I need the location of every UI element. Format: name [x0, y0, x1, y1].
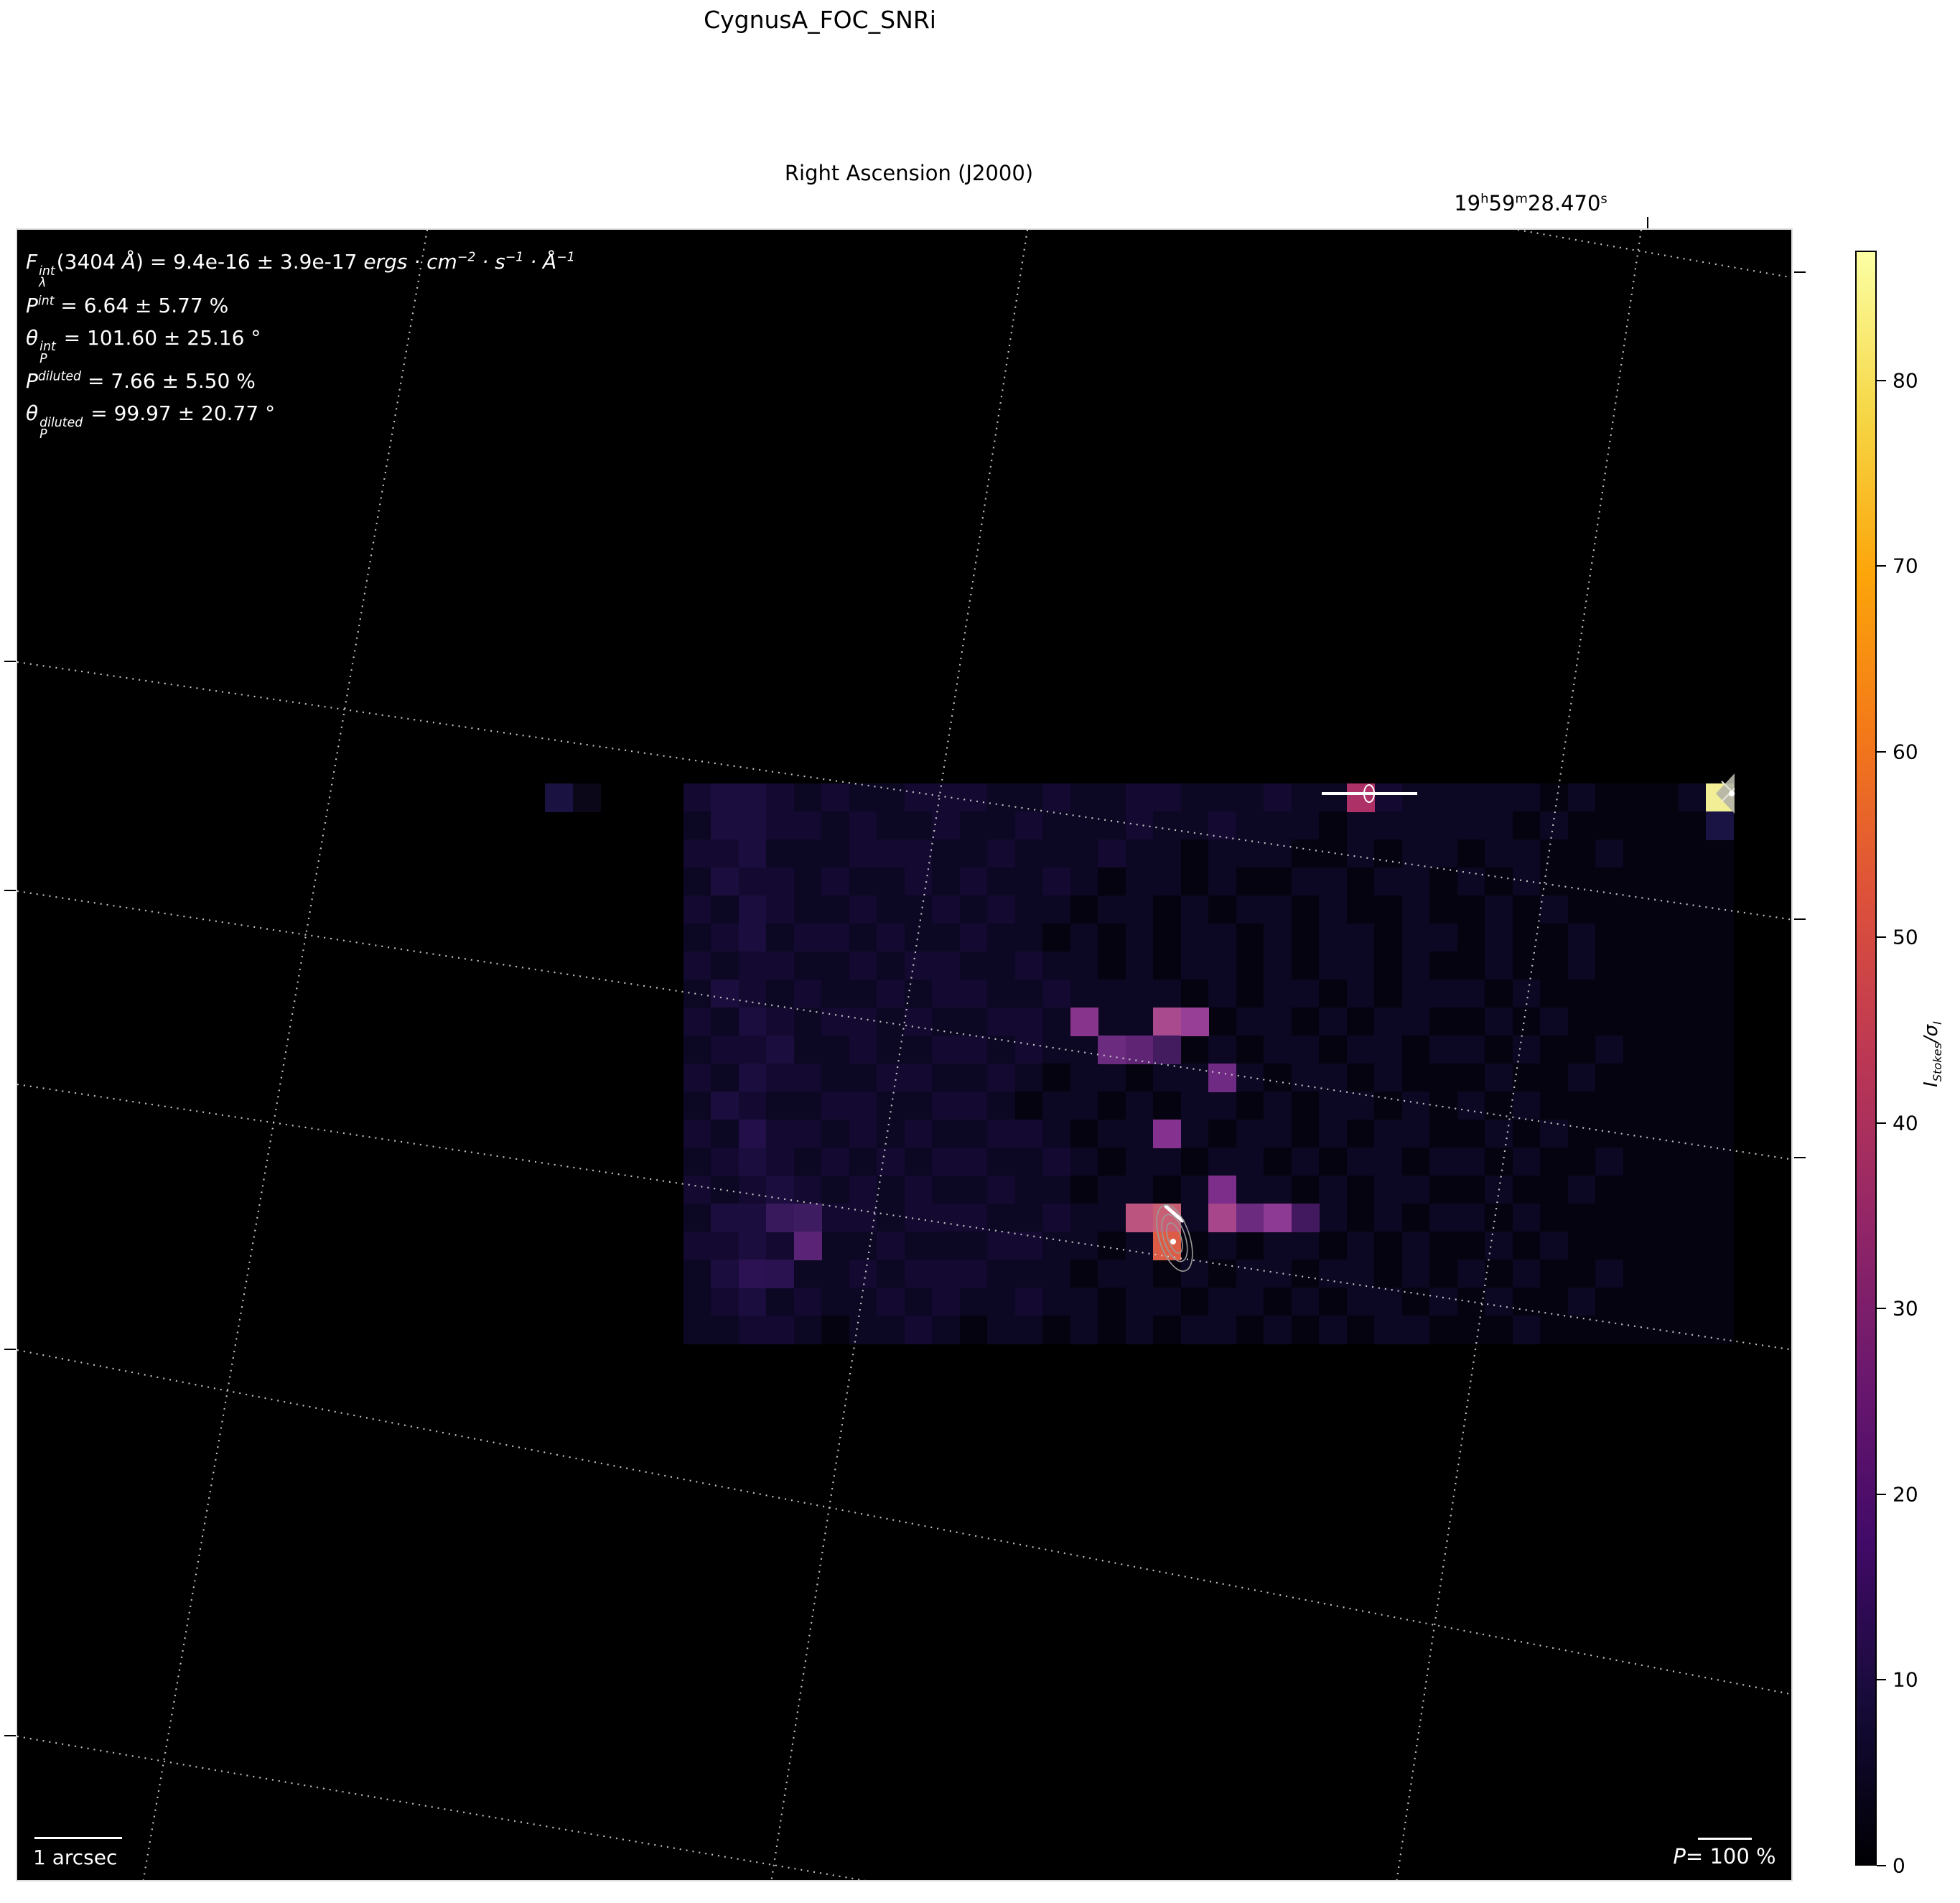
colorbar-tick-label: 20	[1893, 1482, 1918, 1506]
colorbar-axis-label: IStokes/σI	[1921, 1021, 1942, 1087]
ra-axis-label: Right Ascension (J2000)	[785, 161, 1033, 185]
colorbar-tick	[1877, 1308, 1886, 1309]
axis-tick	[1794, 1157, 1806, 1158]
colorbar-tick-label: 30	[1893, 1297, 1918, 1321]
colorbar-tick-label: 40	[1893, 1111, 1918, 1135]
colorbar-tick-label: 10	[1893, 1668, 1918, 1692]
contour-ring	[1157, 1211, 1193, 1265]
axis-tick	[4, 1349, 16, 1350]
axis-tick	[1794, 271, 1806, 273]
polarization-scale-label: P= 100 %	[1673, 1844, 1775, 1869]
contour-ring	[1164, 1221, 1186, 1255]
plot-area	[16, 228, 1793, 1881]
colorbar-tick	[1877, 1494, 1886, 1495]
colorbar-tick-label: 80	[1893, 368, 1918, 392]
contour-center-dot	[1170, 1239, 1176, 1244]
colorbar-tick-label: 60	[1893, 740, 1918, 763]
colorbar-tick-label: 50	[1893, 926, 1918, 949]
figure: CygnusA_FOC_SNRi Right Ascension (J2000)…	[0, 0, 1960, 1903]
colorbar-tick	[1877, 1122, 1886, 1124]
colorbar-tick-label: 70	[1893, 554, 1918, 578]
annotation-line: Pint = 6.64 ± 5.77 %	[26, 289, 575, 322]
colorbar-tick	[1877, 1679, 1886, 1680]
colorbar-tick	[1877, 565, 1886, 567]
scalebar-line	[34, 1837, 122, 1839]
triangle-dot	[1729, 791, 1735, 796]
polarization-scale-line	[1698, 1838, 1752, 1840]
scalebar-label: 1 arcsec	[33, 1846, 117, 1869]
colorbar-tick	[1877, 380, 1886, 381]
colorbar-tick	[1877, 1865, 1886, 1866]
colorbar-tick	[1877, 751, 1886, 753]
figure-title: CygnusA_FOC_SNRi	[704, 6, 936, 34]
integrated-measurements-text: Fintλ(3404 Å) = 9.4e-16 ± 3.9e-17 ergs ·…	[26, 246, 575, 441]
ra-tick-label: 19h59m28.470s	[1454, 191, 1607, 215]
colorbar-tick	[1877, 936, 1886, 938]
polarization-markers	[17, 230, 1791, 1880]
axis-tick	[1794, 918, 1806, 920]
colorbar-tick-label: 0	[1893, 1854, 1905, 1878]
axis-tick	[1647, 217, 1648, 228]
annotation-line: θintP = 101.60 ± 25.16 °	[26, 322, 575, 366]
annotation-line: Pdiluted = 7.66 ± 5.50 %	[26, 365, 575, 397]
annotation-line: θdilutedP = 99.97 ± 20.77 °	[26, 397, 575, 441]
axis-tick	[4, 1735, 16, 1736]
colorbar	[1855, 251, 1877, 1866]
axis-tick	[4, 890, 16, 891]
axis-tick	[4, 661, 16, 662]
annotation-line: Fintλ(3404 Å) = 9.4e-16 ± 3.9e-17 ergs ·…	[26, 246, 575, 289]
